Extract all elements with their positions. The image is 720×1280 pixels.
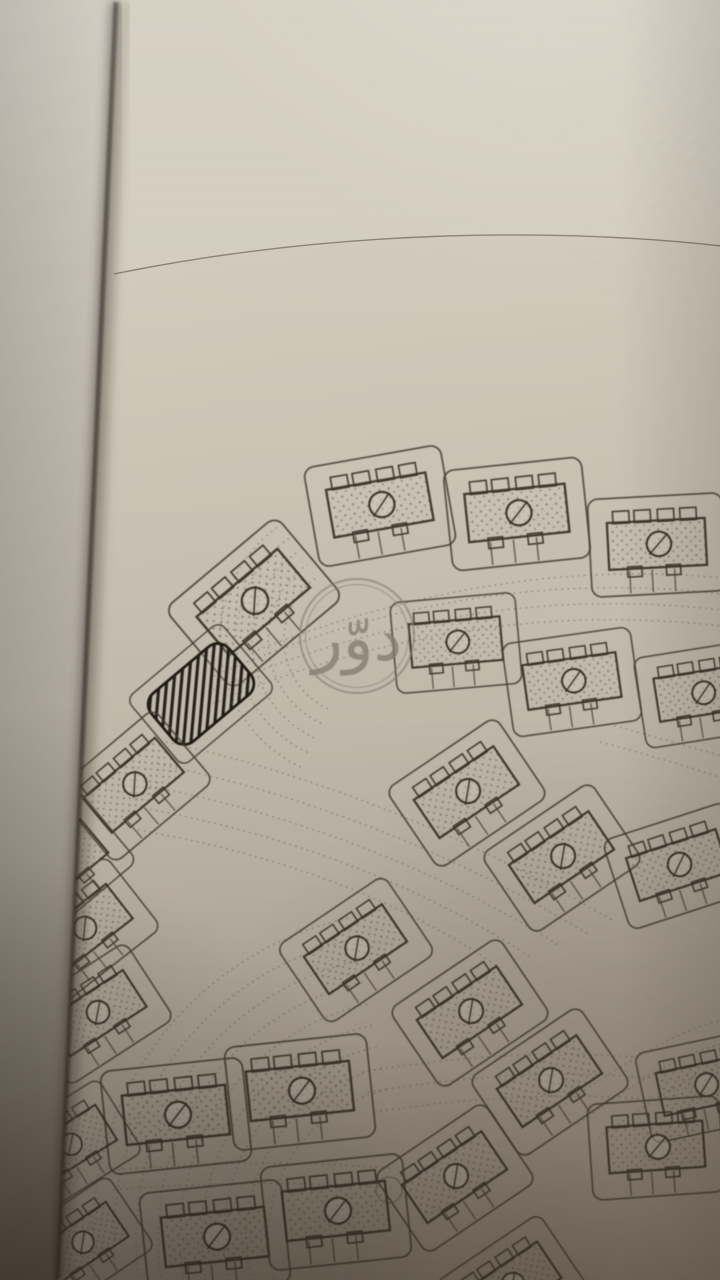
building-plot: [443, 457, 591, 572]
parking-tick: [364, 973, 376, 991]
parking-tick: [431, 668, 433, 689]
parking-tick: [320, 1116, 322, 1140]
parking-tick: [332, 1238, 334, 1262]
building-plot: [224, 1033, 377, 1151]
building-plot: [480, 781, 643, 934]
parking-tick: [679, 721, 682, 742]
parking-tick: [235, 1262, 237, 1280]
parking-tick: [211, 1264, 213, 1280]
parking-tick: [401, 528, 405, 551]
parking-tick: [569, 706, 572, 727]
unit-module: [460, 1272, 479, 1280]
parking-tick: [630, 1174, 632, 1196]
parking-tick: [570, 881, 582, 899]
parking-tick: [309, 1241, 311, 1265]
parking-tick: [355, 536, 359, 559]
parking-tick: [478, 1036, 490, 1054]
parking-tick: [675, 569, 676, 591]
building-plot: [139, 1179, 292, 1280]
parking-tick: [378, 532, 382, 555]
building-plot: [100, 1057, 253, 1175]
developer-watermark: دوّر: [300, 579, 414, 693]
master-plan-map: دوّر: [0, 444, 720, 1280]
parking-tick: [548, 709, 551, 730]
parking-tick: [536, 537, 538, 560]
parking-tick: [452, 666, 454, 687]
highlighted-building: [142, 638, 260, 751]
building-plot: [501, 626, 642, 737]
building-plot: [633, 639, 720, 749]
site-plan-page: دوّر: [0, 0, 720, 1280]
parking-tick: [659, 897, 666, 918]
building-plot: [388, 936, 551, 1089]
parking-tick: [700, 884, 707, 905]
unit-module: [712, 709, 720, 720]
parking-tick: [700, 717, 703, 738]
parking-tick: [105, 1036, 116, 1054]
page-behind: [112, 0, 720, 274]
parking-tick: [149, 1145, 151, 1169]
building-plot: [303, 444, 457, 567]
building-plot: [276, 875, 436, 1025]
building-plot: [587, 1096, 720, 1201]
parking-tick: [266, 627, 282, 646]
building-plot: [385, 716, 548, 869]
building-plot: [602, 801, 720, 930]
parking-tick: [704, 1109, 708, 1129]
parking-tick: [463, 1201, 475, 1219]
building-plot: [435, 1213, 590, 1280]
parking-tick: [652, 1172, 654, 1194]
building-plot: [587, 493, 720, 598]
parking-tick: [356, 1236, 358, 1260]
parking-tick: [296, 1118, 298, 1142]
parking-tick: [674, 1171, 676, 1193]
parking-tick: [558, 1105, 570, 1123]
building-plot: [390, 592, 523, 694]
parking-tick: [630, 571, 631, 593]
building-plot: [260, 1153, 413, 1271]
parking-tick: [77, 1167, 87, 1184]
road-dotted-band: [158, 764, 588, 934]
parking-tick: [475, 816, 487, 834]
parking-tick: [273, 1121, 275, 1145]
parking-tick: [513, 540, 515, 563]
parking-tick: [591, 703, 594, 724]
parking-tick: [90, 1265, 101, 1280]
parking-tick: [680, 890, 687, 911]
parking-tick: [490, 542, 492, 565]
buildings: [0, 444, 720, 1280]
photo-of-masterplan-brochure: دوّر: [0, 0, 720, 1280]
parking-tick: [473, 664, 475, 685]
watermark-logo-text: دوّر: [309, 602, 402, 676]
